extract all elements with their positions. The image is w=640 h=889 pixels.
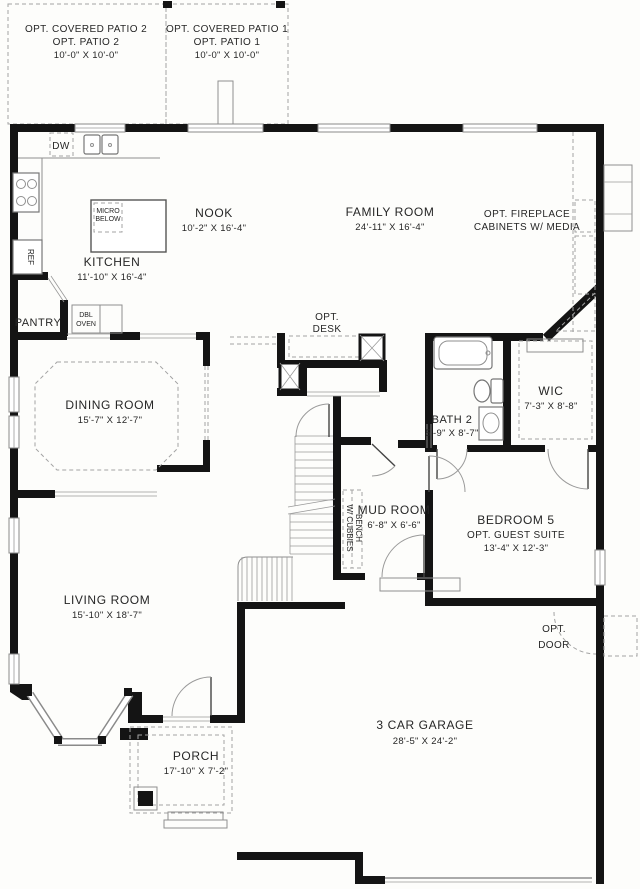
refrigerator-label: REF bbox=[26, 249, 35, 265]
bedroom5-sub: OPT. GUEST SUITE bbox=[467, 530, 565, 541]
bathtub bbox=[434, 337, 492, 369]
patio2-label: OPT. COVERED PATIO 2 bbox=[25, 24, 147, 35]
dishwasher-label: DW bbox=[52, 141, 70, 152]
pantry-label: PANTRY bbox=[15, 317, 62, 329]
opt-fireplace-label2: CABINETS W/ MEDIA bbox=[474, 222, 580, 233]
bedroom5-label: BEDROOM 5 bbox=[477, 513, 554, 527]
mud-room-label: MUD ROOM bbox=[358, 503, 431, 517]
opt-door-label: OPT. bbox=[542, 624, 566, 635]
opt-door-label2: DOOR bbox=[538, 640, 570, 651]
living-room-label: LIVING ROOM bbox=[64, 593, 151, 607]
family-room-dims: 24'-11" X 16'-4" bbox=[355, 222, 424, 233]
living-room-dims: 15'-10" X 18'-7" bbox=[72, 610, 142, 621]
garage-label: 3 CAR GARAGE bbox=[376, 718, 473, 732]
opt-desk-label: OPT. bbox=[315, 312, 339, 323]
bench-label: BENCH bbox=[354, 514, 363, 542]
dbl-oven-label: DBL bbox=[79, 312, 93, 319]
micro-label: MICRO bbox=[96, 208, 120, 215]
floor-plan-drawing: OPT. COVERED PATIO 2 OPT. PATIO 2 10'-0"… bbox=[0, 0, 640, 889]
opt-fireplace-label: OPT. FIREPLACE bbox=[484, 209, 570, 220]
patio2-label2: OPT. PATIO 2 bbox=[53, 37, 120, 48]
patio1-label2: OPT. PATIO 1 bbox=[194, 37, 261, 48]
patio1-dims: 10'-0" X 10'-0" bbox=[195, 50, 260, 61]
bath2-dims: 5'-9" X 8'-7" bbox=[425, 428, 478, 439]
dbl-oven-label2: OVEN bbox=[76, 321, 96, 328]
bench-label2: W/ CUBBIES bbox=[345, 504, 354, 551]
toilet-bowl bbox=[474, 380, 490, 402]
patio1-label: OPT. COVERED PATIO 1 bbox=[166, 24, 288, 35]
porch-dims: 17'-10" X 7'-2" bbox=[164, 766, 229, 777]
bath2-label: BATH 2 bbox=[432, 414, 473, 426]
sink-bowl-left bbox=[84, 135, 100, 154]
kitchen-dims: 11'-10" X 16'-4" bbox=[77, 272, 146, 283]
stove bbox=[13, 173, 39, 212]
garage-dims: 28'-5" X 24'-2" bbox=[393, 736, 458, 747]
micro-label2: BELOW bbox=[95, 216, 121, 223]
toilet-tank bbox=[491, 379, 503, 403]
dining-room-dims: 15'-7" X 12'-7" bbox=[78, 415, 143, 426]
floor-plan-page: OPT. COVERED PATIO 2 OPT. PATIO 2 10'-0"… bbox=[0, 0, 640, 889]
wic-label: WIC bbox=[538, 384, 563, 398]
dining-room-label: DINING ROOM bbox=[65, 398, 154, 412]
bedroom5-dims: 13'-4" X 12'-3" bbox=[484, 543, 549, 554]
family-room-label: FAMILY ROOM bbox=[346, 205, 435, 219]
porch-label: PORCH bbox=[173, 749, 219, 763]
background bbox=[0, 0, 640, 889]
wic-dims: 7'-3" X 8'-8" bbox=[524, 401, 577, 412]
nook-label: NOOK bbox=[195, 206, 233, 220]
sink-bowl-right bbox=[102, 135, 118, 154]
porch-column bbox=[138, 791, 153, 806]
nook-dims: 10'-2" X 16'-4" bbox=[182, 223, 247, 234]
kitchen-label: KITCHEN bbox=[84, 255, 141, 269]
opt-desk-label2: DESK bbox=[313, 324, 342, 335]
patio2-dims: 10'-0" X 10'-0" bbox=[54, 50, 119, 61]
mud-room-dims: 6'-8" X 6'-6" bbox=[367, 520, 420, 531]
